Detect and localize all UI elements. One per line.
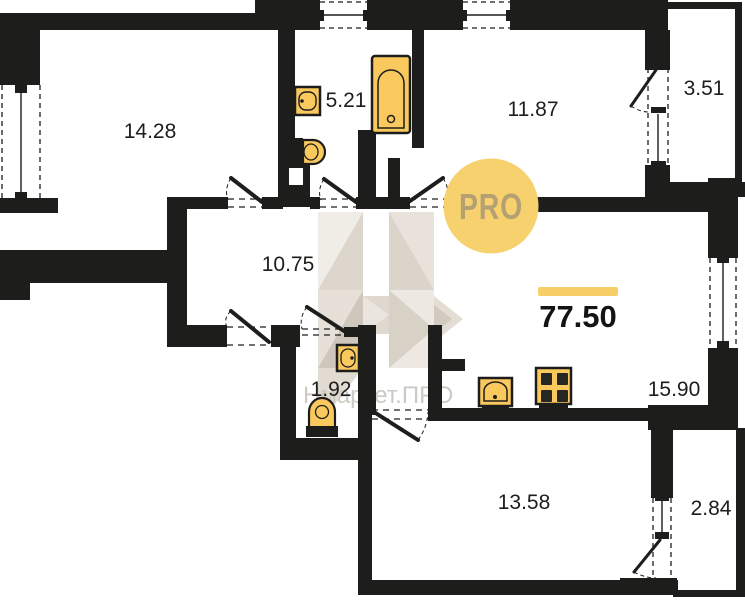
floor-plan: Нмаркет.ПРО [0, 0, 745, 600]
total-area-label: 77.50 [539, 299, 617, 334]
sink-icon [295, 87, 320, 115]
bathtub-icon [372, 56, 410, 133]
room-label-wc: 1.92 [311, 378, 352, 401]
room-label-bedroom-top: 11.87 [508, 98, 559, 121]
vent-shaft [288, 167, 304, 186]
room-label-loggia-bottom: 2.84 [691, 497, 732, 520]
room-label-hallway: 10.75 [262, 253, 315, 276]
total-area-underline [538, 287, 618, 296]
pro-logo-badge: PRO [444, 159, 539, 254]
room-label-room-bottom: 13.58 [498, 491, 551, 514]
room-label-kitchen-living: 15.90 [648, 378, 701, 401]
floor-plan-canvas: Нмаркет.ПРО [0, 0, 745, 600]
kitchen-sink-icon [479, 378, 512, 412]
pro-logo-text: PRO [459, 186, 523, 227]
stove-icon [536, 368, 571, 410]
room-label-loggia-top: 3.51 [684, 77, 725, 100]
wc-sink-icon [337, 345, 359, 371]
wc-toilet-icon [306, 398, 338, 437]
room-label-bedroom-left: 14.28 [124, 120, 177, 143]
room-label-bathroom: 5.21 [326, 89, 367, 112]
toilet-icon [295, 138, 325, 164]
